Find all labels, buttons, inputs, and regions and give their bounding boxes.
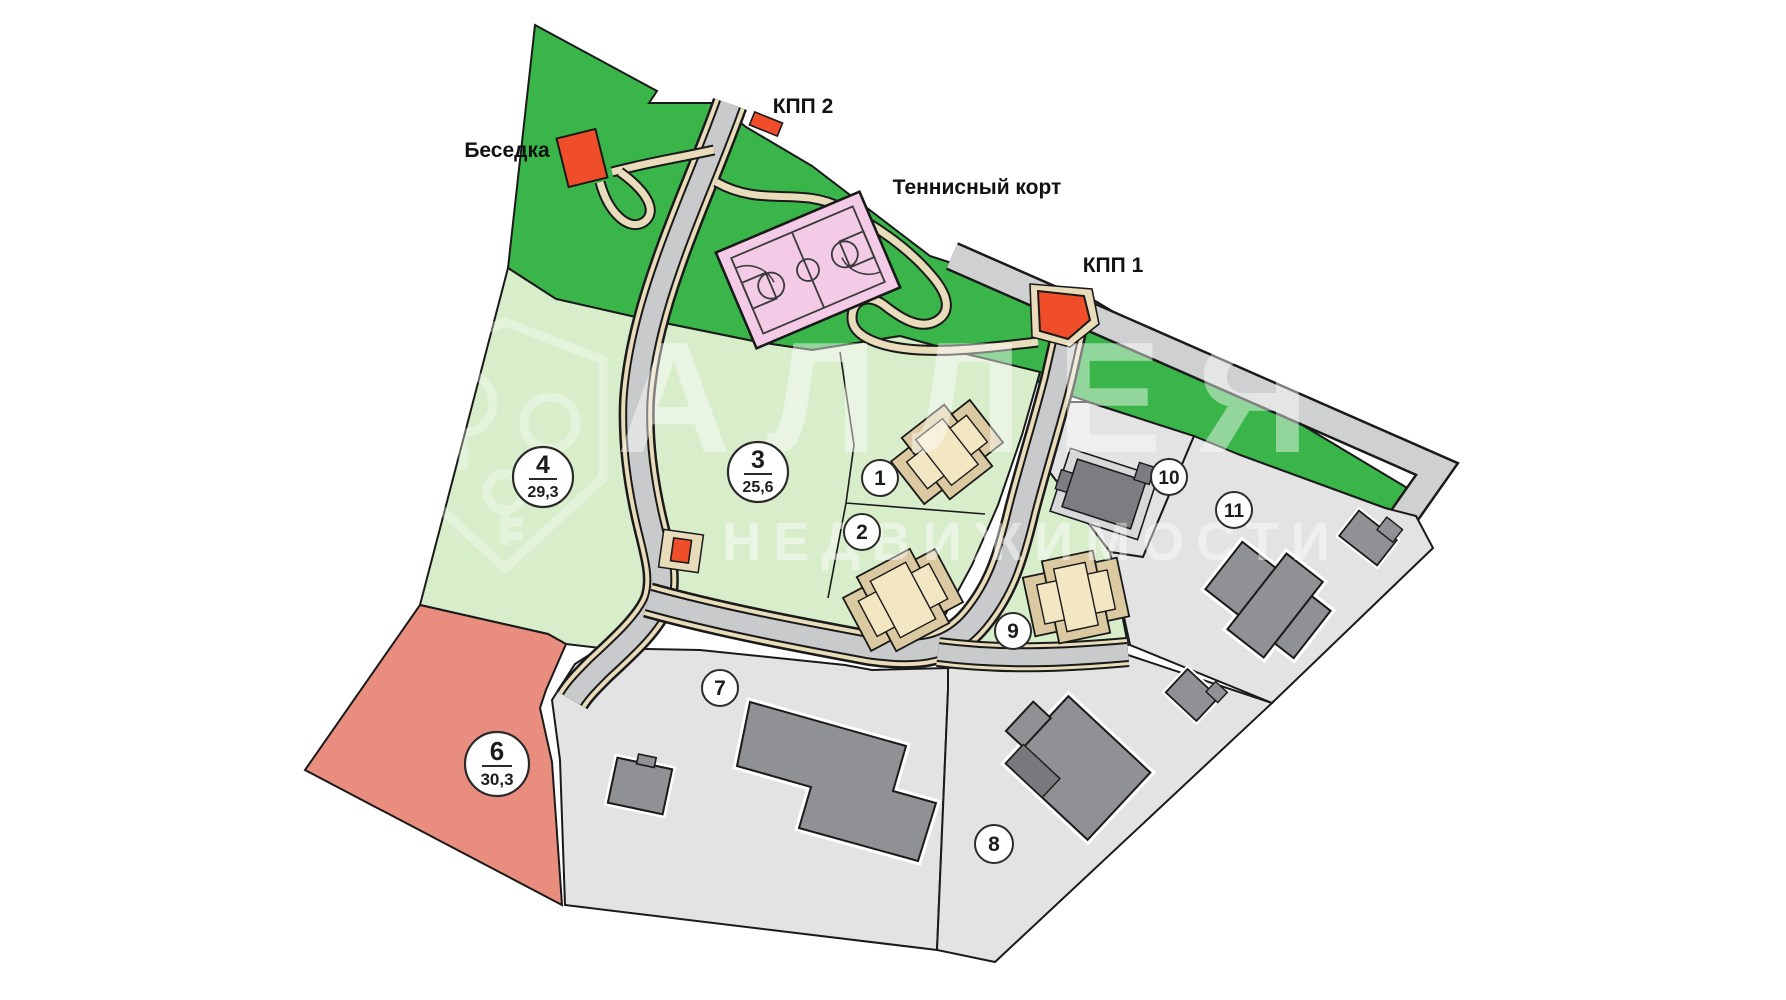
plot-10-number: 10 (1158, 468, 1179, 489)
plot-3-area: 25,6 (742, 479, 773, 496)
plot-3-badge[interactable]: 3 25,6 (728, 442, 788, 502)
plot-6-badge[interactable]: 6 30,3 (465, 732, 529, 796)
plot-4-number: 4 (536, 451, 550, 479)
plot-2-number: 2 (856, 521, 868, 544)
utility-marker (659, 529, 704, 572)
tennis-court-label: Теннисный корт (893, 176, 1062, 199)
plot-9-number: 9 (1007, 620, 1019, 643)
plot-11-number: 11 (1224, 501, 1245, 522)
plot-10-badge[interactable]: 10 (1151, 459, 1187, 495)
plot-4-area: 29,3 (527, 484, 558, 501)
plot-6-area: 30,3 (480, 770, 513, 789)
site-plan-map: АЛЛЕЯ НЕДВИЖИМОСТИ 1 2 3 25,6 4 29,3 6 3… (0, 0, 1786, 1000)
plot-3-number: 3 (751, 446, 765, 474)
site-plan-page: АЛЛЕЯ НЕДВИЖИМОСТИ 1 2 3 25,6 4 29,3 6 3… (0, 0, 1786, 1000)
gazebo-label: Беседка (464, 139, 550, 162)
checkpoint2-label: КПП 2 (773, 95, 834, 118)
plot-9-badge[interactable]: 9 (995, 613, 1031, 649)
plot-6-number: 6 (490, 736, 504, 766)
checkpoint1-label: КПП 1 (1083, 254, 1144, 277)
plot-1-badge[interactable]: 1 (862, 460, 898, 496)
plot-7-number: 7 (714, 677, 726, 700)
plot-8-badge[interactable]: 8 (975, 825, 1013, 863)
plot-2-badge[interactable]: 2 (844, 514, 880, 550)
watermark-line1: АЛЛЕЯ (617, 310, 1344, 486)
road-stub-east (938, 652, 1128, 657)
plot-11-badge[interactable]: 11 (1216, 492, 1252, 528)
plot-1-number: 1 (874, 467, 886, 490)
plot-7-badge[interactable]: 7 (702, 670, 738, 706)
plot-8-number: 8 (988, 833, 1000, 856)
plot-4-badge[interactable]: 4 29,3 (513, 447, 573, 507)
